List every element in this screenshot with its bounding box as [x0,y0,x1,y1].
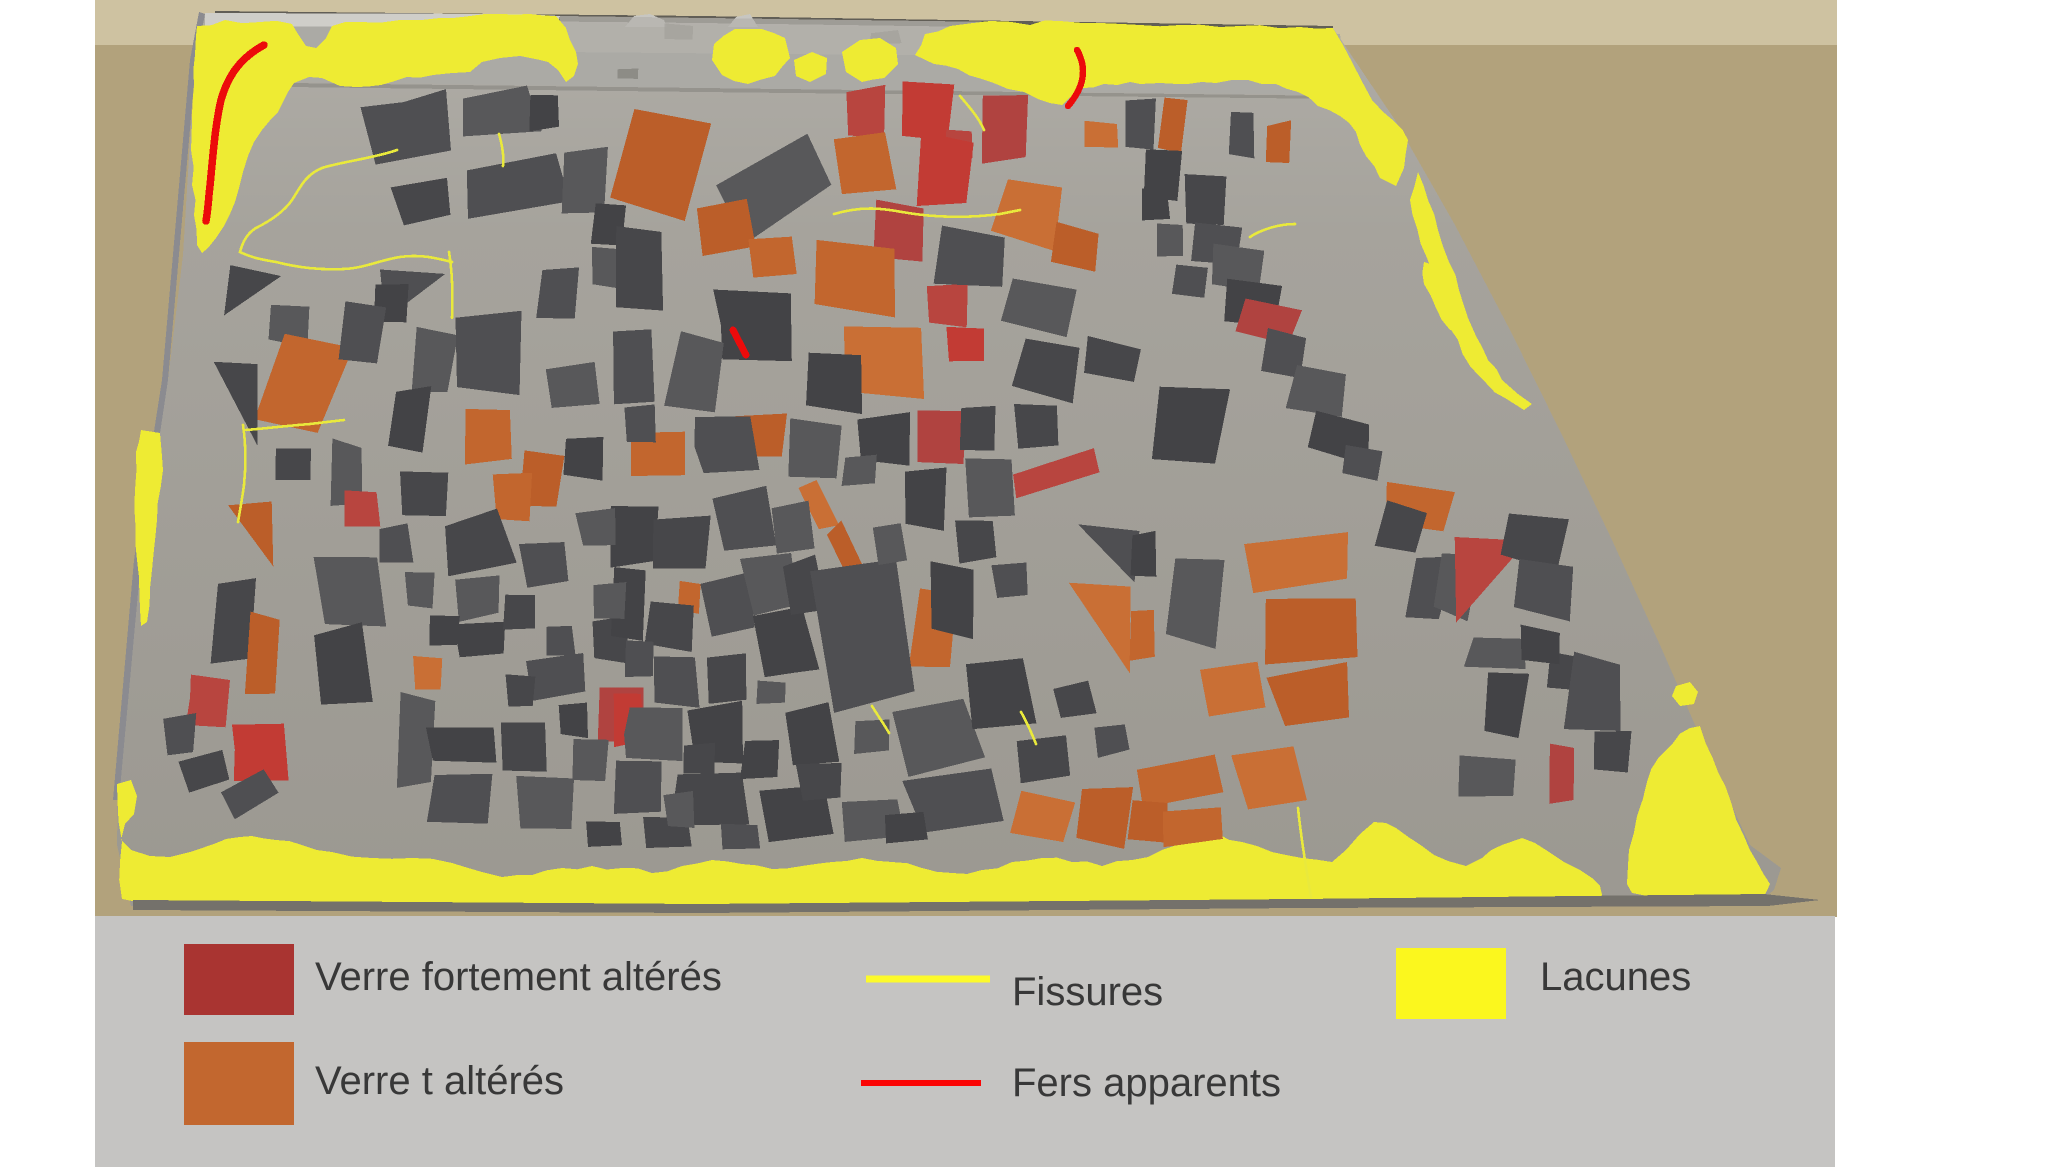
svg-text:Verre fortement altérés: Verre fortement altérés [315,955,722,999]
svg-text:Fissures: Fissures [1012,970,1163,1014]
svg-text:Fers apparents: Fers apparents [1012,1061,1281,1105]
svg-text:Verre t altérés: Verre t altérés [315,1059,564,1103]
svg-text:Lacunes: Lacunes [1540,955,1691,999]
